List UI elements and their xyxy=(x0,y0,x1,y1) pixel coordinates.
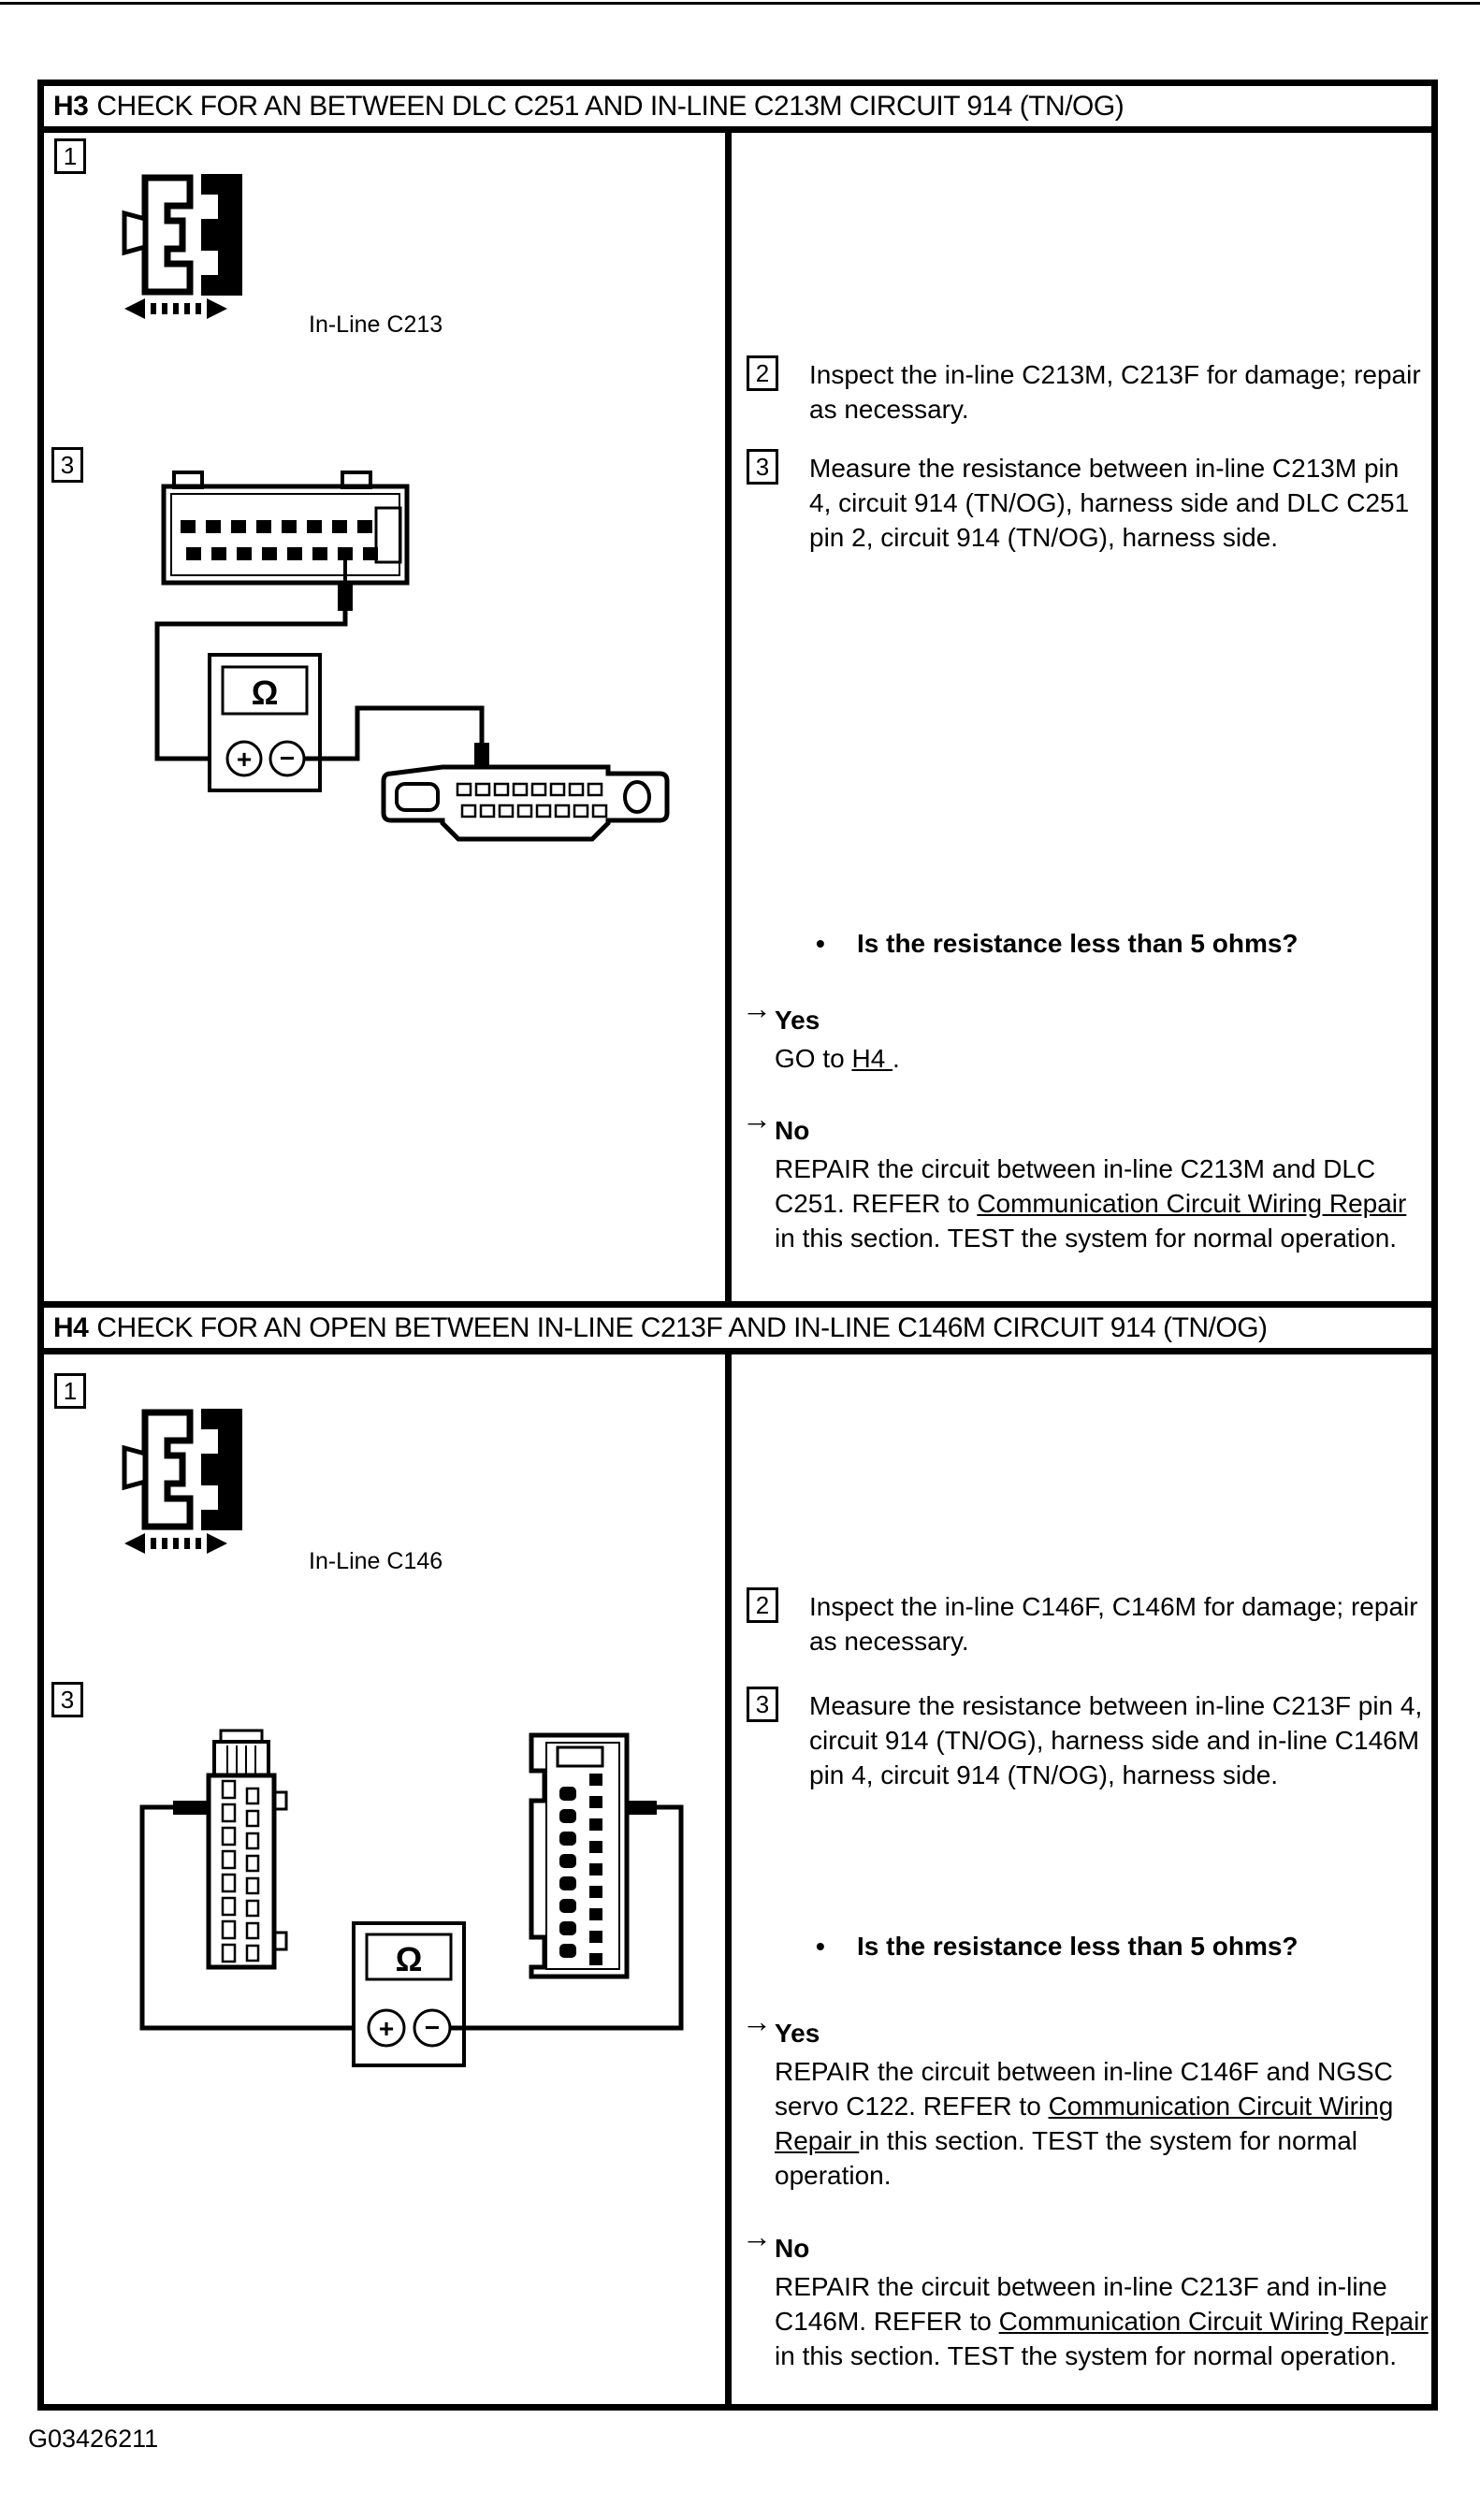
h3-step2-number: 2 xyxy=(756,359,769,387)
h4-measurement-diagram: Ω + − xyxy=(44,1726,728,2095)
ohm-symbol: Ω xyxy=(396,1940,423,1978)
section-h4-header: H4CHECK FOR AN OPEN BETWEEN IN-LINE C213… xyxy=(44,1301,1431,1354)
h4-connector-label: In-Line C146 xyxy=(309,1548,443,1575)
h3-connector-label: In-Line C213 xyxy=(309,311,443,339)
link-h4[interactable]: H4 xyxy=(851,1044,892,1073)
h3-yes-text: GO to xyxy=(775,1044,851,1073)
c146m-keyway xyxy=(558,1747,602,1766)
h3-step1-box: 1 xyxy=(54,138,86,174)
h4-step2-box: 2 xyxy=(747,1587,778,1623)
bullet-icon: • xyxy=(816,926,857,961)
h3-step2-text: Inspect the in-line C213M, C213F for dam… xyxy=(809,357,1427,427)
h3-yes-label: Yes xyxy=(775,1007,820,1035)
h3-step3-text: Measure the resistance between in-line C… xyxy=(809,451,1427,555)
h4-step3-number-right: 3 xyxy=(756,1690,769,1718)
dlc-c251-connector xyxy=(384,767,667,839)
h4-step2-text: Inspect the in-line C146F, C146M for dam… xyxy=(809,1589,1427,1658)
link-communication-circuit-wiring-repair[interactable]: Communication Circuit Wiring Repair xyxy=(999,2307,1429,2336)
h4-yes-label: Yes xyxy=(775,2020,820,2048)
connector-pins-top-row xyxy=(181,520,372,533)
page-top-rule xyxy=(0,2,1480,5)
link-communication-circuit-wiring-repair[interactable]: Communication Circuit Wiring Repair xyxy=(977,1189,1406,1218)
minus-symbol: − xyxy=(280,744,295,773)
disconnect-icon-male-half xyxy=(201,174,242,296)
h3-no-label: No xyxy=(775,1117,809,1145)
h4-yes-text-post: in this section. TEST the system for nor… xyxy=(775,2126,1357,2190)
yes-arrow-icon: → xyxy=(742,2006,772,2036)
yes-arrow-icon: → xyxy=(742,993,772,1023)
h3-question: Is the resistance less than 5 ohms? xyxy=(857,929,1299,958)
figure-id: G03426211 xyxy=(28,2425,158,2454)
disconnect-icon-tab xyxy=(124,1448,145,1487)
h4-step3-box-right: 3 xyxy=(747,1687,778,1722)
probe-tip xyxy=(173,1801,209,1815)
plus-symbol: + xyxy=(379,2014,394,2043)
disconnect-icon-tab xyxy=(124,213,145,253)
no-arrow-icon: → xyxy=(742,2222,772,2252)
h3-step1-number: 1 xyxy=(64,142,77,170)
ohmmeter: Ω + − xyxy=(210,655,320,790)
minus-symbol: − xyxy=(425,2013,440,2042)
disconnect-icon-female-half xyxy=(145,178,190,292)
h4-step3-number: 3 xyxy=(61,1686,74,1714)
disconnect-arrow-icon xyxy=(124,1533,227,1554)
h3-yes-action: GO to H4 . xyxy=(775,1041,1429,1076)
disconnect-icon-female-half xyxy=(145,1412,190,1527)
h3-step2-box: 2 xyxy=(747,355,778,391)
pinpoint-test-page: H3CHECK FOR AN BETWEEN DLC C251 AND IN-L… xyxy=(0,0,1480,2520)
h3-question-row: •Is the resistance less than 5 ohms? xyxy=(816,926,1424,961)
no-arrow-icon: → xyxy=(742,1104,772,1134)
h4-step1-number: 1 xyxy=(64,1377,77,1405)
section-h3-title: CHECK FOR AN BETWEEN DLC C251 AND IN-LIN… xyxy=(96,91,1124,122)
plus-symbol: + xyxy=(237,745,252,774)
disconnect-arrow-icon xyxy=(124,298,227,319)
h4-question-row: •Is the resistance less than 5 ohms? xyxy=(816,1929,1424,1963)
h4-no-text-post: in this section. TEST the system for nor… xyxy=(775,2341,1397,2370)
inline-c146m-connector xyxy=(531,1735,627,1977)
h4-yes-action: REPAIR the circuit between in-line C146F… xyxy=(775,2054,1429,2193)
section-h3-header: H3CHECK FOR AN BETWEEN DLC C251 AND IN-L… xyxy=(44,86,1431,133)
ohm-symbol: Ω xyxy=(252,673,279,712)
h4-step2-number: 2 xyxy=(756,1591,769,1619)
section-h4-title: CHECK FOR AN OPEN BETWEEN IN-LINE C213F … xyxy=(96,1312,1267,1343)
h4-step1-box: 1 xyxy=(54,1373,86,1409)
bullet-icon: • xyxy=(816,1929,857,1963)
disconnect-connector-icon xyxy=(96,167,255,321)
h4-question: Is the resistance less than 5 ohms? xyxy=(857,1932,1299,1961)
h3-step3-box-right: 3 xyxy=(747,449,778,485)
h4-step3-text: Measure the resistance between in-line C… xyxy=(809,1688,1427,1792)
disconnect-connector-icon xyxy=(96,1401,255,1556)
c146m-pins-right-column xyxy=(589,1774,602,1965)
h3-yes-text-post: . xyxy=(892,1044,900,1073)
probe-tip xyxy=(625,1801,657,1815)
h3-no-text-post: in this section. TEST the system for nor… xyxy=(775,1224,1397,1253)
h3-no-action: REPAIR the circuit between in-line C213M… xyxy=(775,1151,1429,1255)
connector-pins-bottom-row xyxy=(186,547,378,560)
disconnect-icon-male-half xyxy=(201,1409,242,1530)
h4-no-label: No xyxy=(775,2235,809,2263)
section-h4-label: H4 xyxy=(53,1312,88,1343)
h3-step3-number-right: 3 xyxy=(756,453,769,481)
ohmmeter: Ω + − xyxy=(354,1923,464,2065)
probe-tip xyxy=(338,581,353,611)
inline-c213m-connector xyxy=(164,472,407,583)
h4-step3-box: 3 xyxy=(51,1682,83,1717)
inline-c213f-connector xyxy=(209,1731,286,1967)
h4-no-action: REPAIR the circuit between in-line C213F… xyxy=(775,2269,1429,2373)
section-h3-label: H3 xyxy=(53,91,88,122)
h3-measurement-diagram: Ω + − xyxy=(44,463,728,856)
